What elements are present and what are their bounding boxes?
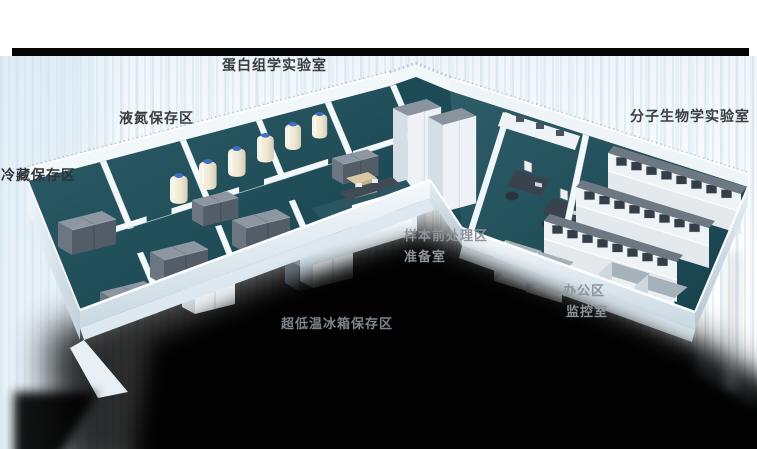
label-office-area: 办公区 — [563, 284, 605, 297]
label-cold-storage: 冷藏保存区 — [1, 168, 76, 182]
label-preparation-room: 准备室 — [404, 250, 446, 263]
label-proteomics-lab: 蛋白组学实验室 — [222, 58, 327, 72]
label-molecular-biology-lab: 分子生物学实验室 — [630, 109, 750, 123]
scene-canvas: 蛋白组学实验室 液氮保存区 冷藏保存区 分子生物学实验室 样本前处理区 准备室 … — [0, 0, 757, 449]
floorplan-render — [0, 0, 757, 449]
label-monitoring-room: 监控室 — [566, 305, 608, 318]
label-sample-pretreatment: 样本前处理区 — [404, 229, 488, 242]
label-liquid-nitrogen-storage: 液氮保存区 — [119, 111, 194, 125]
top-divider-bar — [12, 48, 749, 56]
label-ult-freezer-storage: 超低温冰箱保存区 — [281, 317, 393, 330]
